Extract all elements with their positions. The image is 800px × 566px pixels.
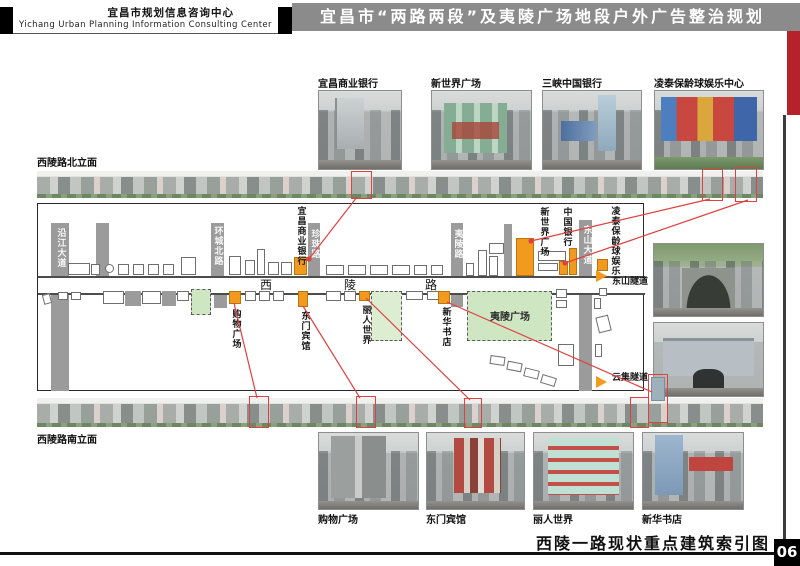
org-title-box: 宜昌市规划信息咨询中心 Yichang Urban Planning Infor…: [13, 3, 278, 34]
highlight-box: [630, 397, 649, 428]
dongshan-tunnel-label: 东山隧道: [612, 274, 648, 287]
photo-texture: [432, 160, 531, 169]
label-xinhua-bookstore: 新华书店: [440, 307, 449, 347]
road-label-yanjiang: 沿江大道: [55, 228, 64, 268]
dongshan-tunnel-marker: [596, 270, 607, 282]
header-left-block: [0, 7, 13, 34]
landmark-china-bank: [559, 261, 568, 275]
label-new-world-plaza: 新世界广场: [538, 207, 547, 257]
bottom-photo-label-3: 丽人世界: [533, 511, 573, 526]
photo-dongshan-tunnel: [653, 243, 764, 317]
bottom-photo-label-2: 东门宾馆: [426, 511, 466, 526]
org-name-en: Yichang Urban Planning Information Consu…: [13, 20, 278, 30]
page-number: 06: [774, 539, 800, 566]
highlight-box: [648, 374, 668, 423]
photo-texture: [693, 369, 724, 389]
yunji-tunnel-label: 云集隧道: [612, 370, 648, 383]
photo-three-gorges-bank-of-china: [542, 90, 642, 170]
top-photo-label-1: 宜昌商业银行: [318, 75, 378, 90]
xiling-road-char: 路: [425, 279, 437, 291]
photo-texture: [548, 438, 619, 496]
street-index-map: 西 陵 路 沿江大道 环城北路 珍珠路 夷陵路 东山大道: [37, 203, 644, 391]
photo-texture: [655, 435, 683, 494]
label-shopping-plaza: 购物广场: [230, 309, 239, 349]
top-photo-label-3: 三峡中国银行: [542, 75, 602, 90]
label-liren-world: 丽人世界: [360, 305, 369, 345]
photo-new-world-plaza: [431, 90, 532, 170]
road-label-huancheng: 环城北路: [212, 226, 221, 266]
photo-texture: [689, 457, 733, 471]
photo-texture: [643, 501, 743, 509]
photo-texture: [319, 160, 401, 169]
top-photo-label-4: 凌泰保龄球娱乐中心: [654, 75, 744, 90]
yiling-plaza-label: 夷陵广场: [490, 308, 530, 323]
landmark-new-world-plaza: [516, 238, 534, 276]
photo-shopping-plaza: [318, 432, 419, 510]
road-stub: [504, 224, 512, 276]
photo-texture: [682, 268, 734, 310]
landmark-liren-world: [359, 291, 370, 301]
photo-dongmen-hotel: [426, 432, 525, 510]
photo-texture: [331, 436, 386, 498]
photo-texture: [661, 97, 756, 141]
landmark-shopping-plaza: [229, 291, 241, 304]
road-label-dongshan: 东山大道: [581, 225, 590, 265]
photo-texture: [427, 501, 524, 509]
road-label-yiling: 夷陵路: [452, 229, 461, 259]
photo-texture: [561, 121, 596, 141]
yunji-tunnel-marker: [596, 376, 607, 388]
photo-yunji-tunnel: [653, 322, 764, 397]
photo-texture: [543, 160, 641, 169]
north-elevation-label: 西陵路北立面: [37, 154, 97, 169]
green-area-mid: [371, 291, 402, 341]
label-yichang-commercial-bank: 宜昌商业银行: [295, 206, 304, 266]
top-photo-label-2: 新世界广场: [431, 75, 481, 90]
red-accent-bar: [787, 31, 800, 115]
landmark-xinhua-bookstore: [438, 291, 450, 304]
photo-lingtai-bowling-center: [654, 90, 764, 170]
label-china-bank: 中国银行: [561, 207, 570, 247]
planning-document-page: 宜昌市规划信息咨询中心 Yichang Urban Planning Infor…: [0, 0, 800, 566]
highlight-box: [464, 398, 482, 428]
bottom-photo-label-1: 购物广场: [318, 511, 358, 526]
highlight-box: [249, 396, 269, 428]
highlight-box: [735, 167, 757, 202]
photo-liren-world: [533, 432, 634, 510]
org-name-cn: 宜昌市规划信息咨询中心: [13, 3, 278, 20]
bottom-photo-label-4: 新华书店: [642, 511, 682, 526]
xiling-road-char: 西: [260, 279, 272, 291]
photo-texture: [452, 122, 500, 139]
photo-xinhua-bookstore: [642, 432, 744, 510]
photo-texture: [534, 501, 633, 509]
photo-texture: [454, 438, 501, 493]
south-elevation-label: 西陵路南立面: [37, 431, 97, 446]
photo-texture: [598, 95, 616, 151]
highlight-box: [351, 171, 372, 199]
highlight-box: [702, 169, 723, 201]
yiling-plaza-area: 夷陵广场: [467, 291, 552, 341]
header-mid-block: [278, 7, 292, 34]
label-lingtai-bowling: 凌泰保龄球娱乐: [609, 206, 618, 276]
photo-texture: [319, 501, 418, 509]
road-label-zhenzhu: 珍珠路: [309, 229, 318, 259]
photo-texture: [335, 98, 363, 149]
right-border-rule: [783, 115, 786, 543]
photo-yichang-commercial-bank: [318, 90, 402, 170]
xiling-road-char: 陵: [344, 279, 356, 291]
green-area-small: [191, 289, 211, 315]
label-dongmen-hotel: 东门宾馆: [299, 311, 308, 351]
bottom-rule: [0, 552, 774, 555]
north-elevation-strip: [37, 171, 763, 198]
figure-caption: 西陵一路现状重点建筑索引图: [400, 530, 770, 554]
highlight-box: [356, 396, 376, 428]
photo-texture: [654, 388, 763, 396]
landmark-dongmen-hotel: [298, 291, 308, 307]
landmark-tower: [569, 248, 577, 275]
photo-texture: [654, 308, 763, 316]
document-title: 宜昌市“两路两段”及夷陵广场地段户外广告整治规划: [292, 3, 800, 31]
